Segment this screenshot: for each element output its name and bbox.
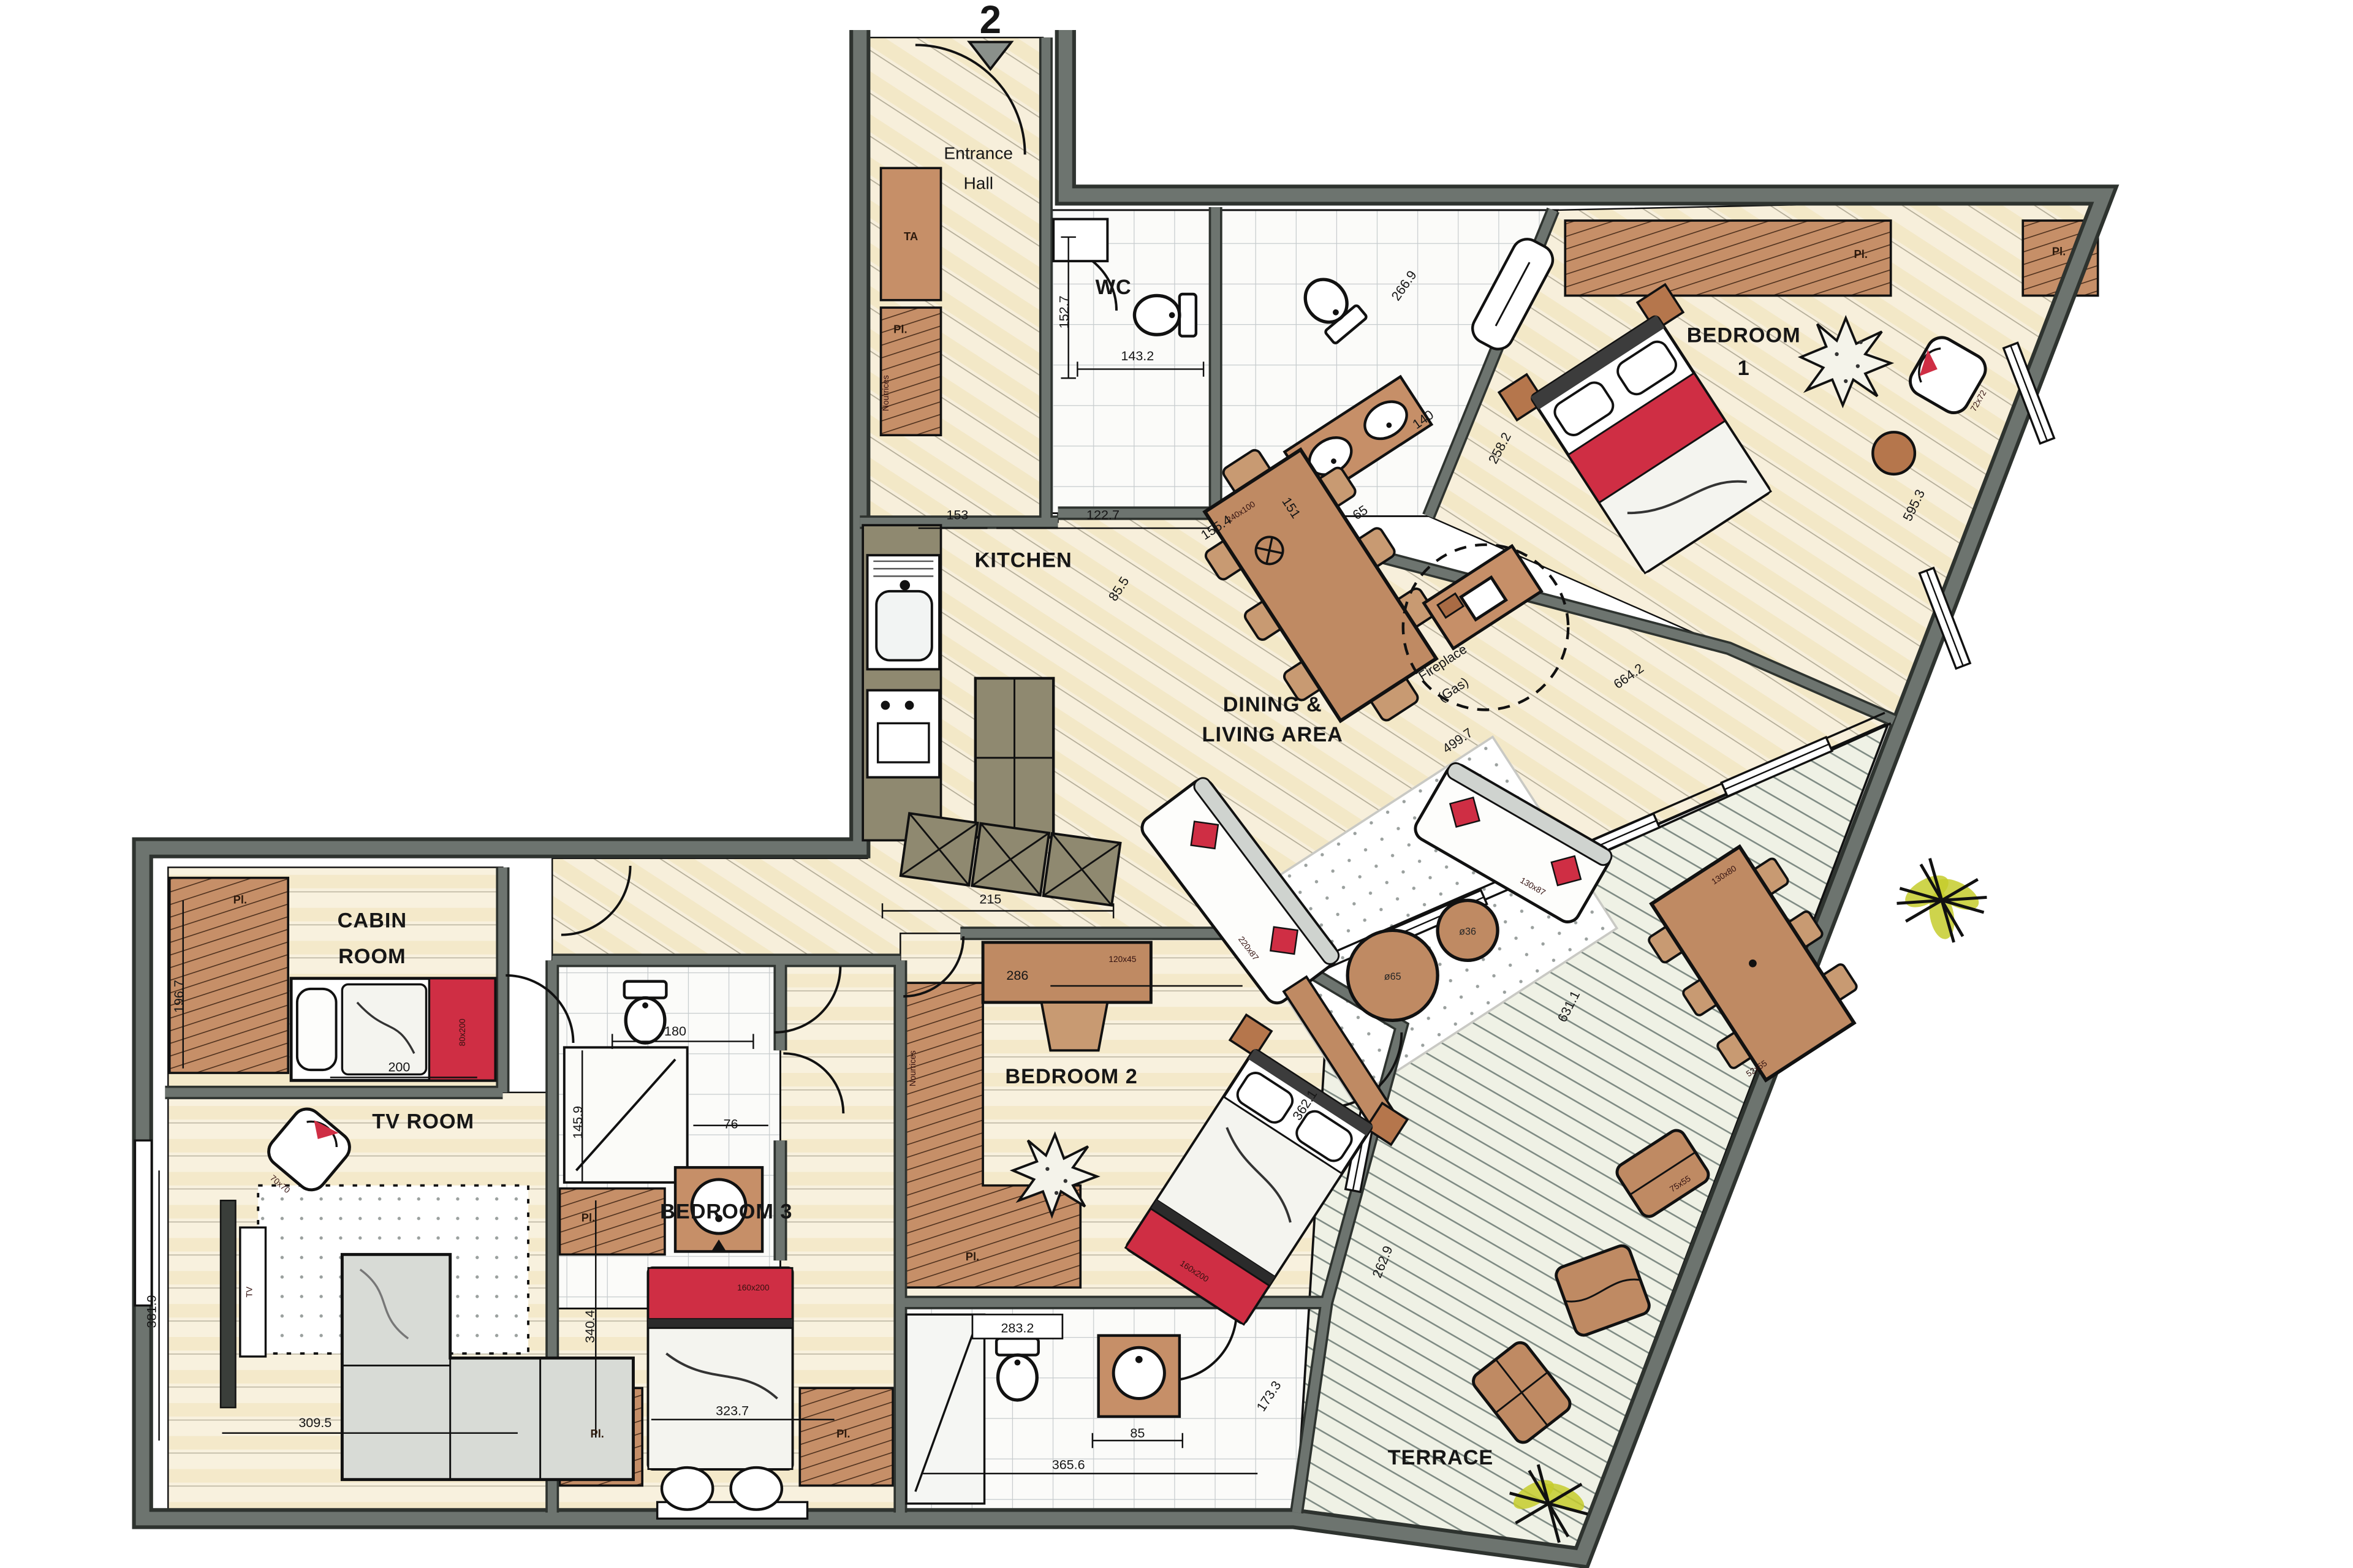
label-pl-bedroom2: Pl. xyxy=(966,1250,979,1263)
dim-hall-width: 215 xyxy=(979,891,1001,906)
dim-bath3-door: 76 xyxy=(724,1116,738,1132)
dim-tvroom-width: 309.5 xyxy=(298,1415,332,1430)
entrance-closet xyxy=(881,308,941,435)
dim-bedroom2-width: 286 xyxy=(1006,968,1028,983)
label-pl-bedroom1a: Pl. xyxy=(1854,248,1868,260)
dim-bath2-width: 283.2 xyxy=(1001,1320,1034,1336)
label-entrance-1: Entrance xyxy=(944,144,1013,163)
bedroom1-closet-left xyxy=(1565,221,1890,295)
terrace-plant-1 xyxy=(1897,858,1987,942)
label-terrace: TERRACE xyxy=(1388,1446,1493,1469)
coffee-table-small-size: ø36 xyxy=(1459,926,1476,937)
label-bedroom3: BEDROOM 3 xyxy=(660,1200,792,1224)
label-pl-entrance: Pl. xyxy=(893,323,907,336)
dim-tvroom-depth: 381.9 xyxy=(144,1295,159,1328)
wc-sink xyxy=(1053,219,1107,262)
floor-number: 2 xyxy=(980,0,1001,42)
floor-plan-drawing: 240x100 Fireplace (Gas) 220x87 130x87 ø6… xyxy=(0,0,2353,1568)
label-dining-1: DINING & xyxy=(1223,693,1322,716)
dim-bath2-len: 365.6 xyxy=(1052,1457,1085,1472)
label-cabin-1: CABIN xyxy=(338,909,407,932)
bedroom1-side-table xyxy=(1873,432,1915,474)
floor-plan-page: 240x100 Fireplace (Gas) 220x87 130x87 ø6… xyxy=(0,0,2353,1568)
kitchen-sink xyxy=(868,555,940,669)
label-pl-bedroom3b: Pl. xyxy=(836,1427,850,1440)
label-bedroom1-2: 1 xyxy=(1738,357,1750,380)
bedroom2-desk-chair xyxy=(1042,1002,1108,1050)
dim-kitchen-counter: 153 xyxy=(946,507,968,522)
label-cabin-2: ROOM xyxy=(338,945,406,968)
tv-room-window xyxy=(135,1140,151,1305)
dim-wc-depth: 152.7 xyxy=(1056,295,1072,328)
bathroom2-shower xyxy=(906,1314,984,1504)
bathroom2-toilet xyxy=(996,1338,1039,1399)
cabin-closet xyxy=(170,878,288,1073)
label-pl-bath3: Pl. xyxy=(582,1211,595,1224)
wc-toilet xyxy=(1134,294,1195,336)
label-entrance-2: Hall xyxy=(963,174,993,193)
label-ta: TA xyxy=(904,230,918,243)
label-wc: WC xyxy=(1096,276,1132,299)
cabin-bed-size: 80x200 xyxy=(458,1018,467,1046)
dim-bath3-shower: 145.9 xyxy=(570,1106,585,1139)
label-kitchen: KITCHEN xyxy=(975,549,1072,572)
dim-bedroom3-depth: 340.4 xyxy=(582,1310,597,1343)
label-bedroom2: BEDROOM 2 xyxy=(1005,1065,1137,1088)
label-tv-room: TV ROOM xyxy=(372,1110,474,1134)
bathroom3-closet xyxy=(559,1189,664,1255)
label-pl-cabin: Pl. xyxy=(233,893,247,906)
coffee-table-large-size: ø65 xyxy=(1384,971,1401,982)
dim-bath2-vanity: 85 xyxy=(1130,1425,1145,1441)
dim-cabin-closet: 196.7 xyxy=(171,980,186,1013)
label-dining-2: LIVING AREA xyxy=(1202,723,1343,746)
bedroom2-desk-size: 120x45 xyxy=(1108,955,1136,964)
label-pl-bedroom1b: Pl. xyxy=(2052,244,2066,257)
kitchen-stove xyxy=(868,691,940,778)
bathroom3-toilet xyxy=(624,982,667,1043)
dim-kitchen-island: 122.7 xyxy=(1086,507,1120,522)
dim-bedroom3-width: 323.7 xyxy=(716,1403,749,1418)
kitchen-island xyxy=(976,678,1053,838)
tv-label: TV xyxy=(244,1286,254,1297)
bathroom2-vanity xyxy=(1099,1336,1180,1417)
dim-bath3-width: 180 xyxy=(664,1023,686,1039)
dim-wc-width: 143.2 xyxy=(1121,348,1154,363)
label-bedroom1-1: BEDROOM xyxy=(1687,324,1801,347)
label-nourrices-entrance: Nourrices xyxy=(881,375,890,411)
label-pl-bedroom3a: Pl. xyxy=(590,1427,604,1440)
bedroom3-bed-size: 160x200 xyxy=(737,1283,770,1292)
label-nourrices-bedroom2: Nourrices xyxy=(908,1050,917,1086)
dim-cabin-bed-len: 200 xyxy=(388,1059,410,1075)
